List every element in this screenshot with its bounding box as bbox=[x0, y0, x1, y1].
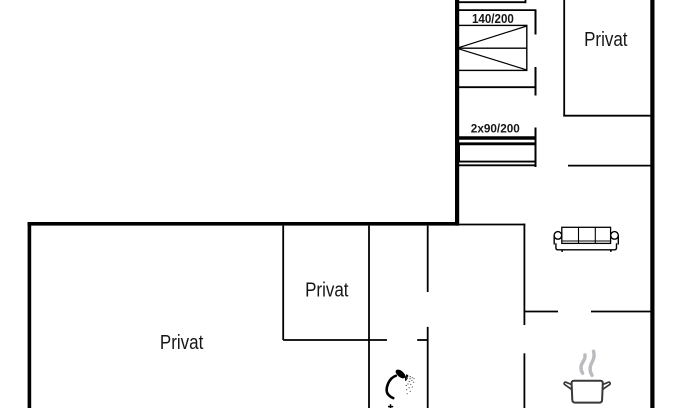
svg-text:2x90/200: 2x90/200 bbox=[471, 121, 520, 135]
svg-text:Privat: Privat bbox=[305, 279, 349, 301]
svg-text:140/200: 140/200 bbox=[472, 12, 514, 26]
svg-text:Privat: Privat bbox=[160, 332, 204, 354]
svg-text:Privat: Privat bbox=[584, 29, 628, 51]
